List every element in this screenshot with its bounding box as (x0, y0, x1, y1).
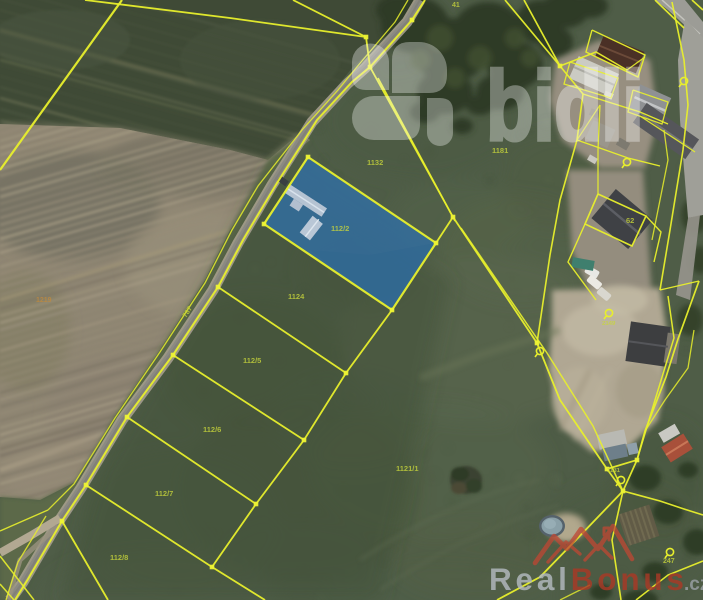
svg-text:RealBonus: RealBonus (489, 561, 688, 597)
svg-text:41: 41 (452, 2, 460, 9)
svg-text:1131: 1131 (607, 468, 621, 474)
svg-text:1121/1: 1121/1 (396, 464, 419, 473)
svg-text:62: 62 (626, 216, 634, 225)
svg-text:112/5: 112/5 (243, 356, 261, 365)
svg-text:112/2: 112/2 (331, 224, 349, 233)
svg-text:112/6: 112/6 (203, 425, 221, 434)
svg-text:1124: 1124 (288, 292, 305, 301)
svg-text:1219: 1219 (36, 297, 52, 304)
svg-text:112/8: 112/8 (110, 553, 128, 562)
svg-text:bidli: bidli (486, 52, 643, 161)
svg-text:2149: 2149 (602, 321, 616, 327)
svg-text:.cz: .cz (684, 574, 703, 595)
svg-text:1132: 1132 (367, 158, 383, 167)
svg-text:112/7: 112/7 (155, 489, 173, 498)
